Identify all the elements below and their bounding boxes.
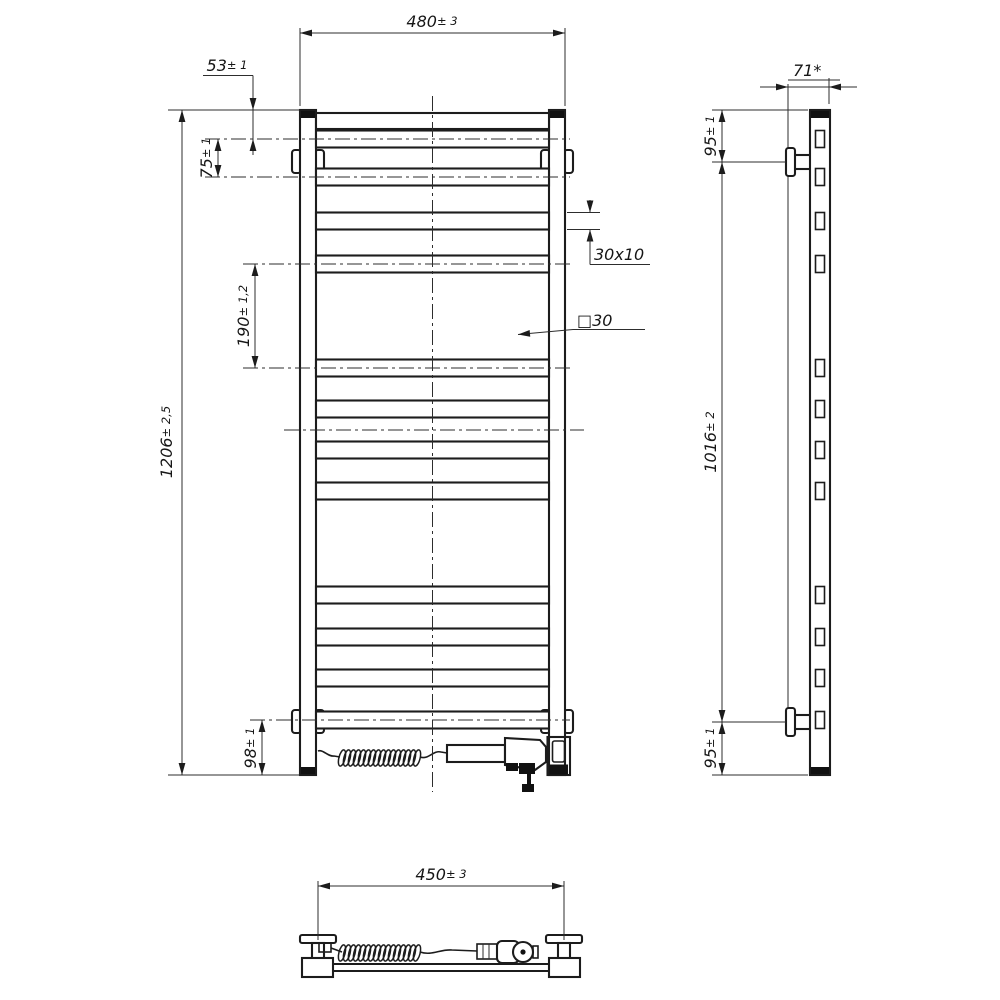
- rung-slot: [816, 442, 825, 459]
- power-cable-bottom: [319, 941, 538, 963]
- technical-drawing-page: 480± 3 1206± 2,5 53± 1 75± 1 190± 1,2 98…: [0, 0, 1000, 1000]
- wall-bracket-side-top: [786, 148, 810, 176]
- left-post: [300, 110, 316, 775]
- power-plug: [447, 738, 546, 792]
- rung-slot: [816, 169, 825, 186]
- dim-rung-pitch: 75± 1: [197, 138, 216, 179]
- bottom-view: [300, 935, 582, 977]
- heating-element-cap: [550, 765, 569, 775]
- post-cap: [301, 111, 315, 118]
- rung-slot: [816, 483, 825, 500]
- post-cap: [811, 767, 829, 774]
- dim-bracket-spacing: 450± 3: [415, 865, 466, 884]
- right-post: [549, 110, 565, 775]
- plug-prong: [506, 763, 518, 771]
- post-cap: [301, 767, 315, 774]
- dim-height: 1206± 2,5: [157, 406, 176, 478]
- dim-depth: 71*: [793, 61, 821, 80]
- rung-slot: [816, 670, 825, 687]
- rung-slot: [816, 213, 825, 230]
- cable-lead: [318, 751, 340, 757]
- plug-prong: [519, 763, 535, 774]
- bracket-stem: [312, 943, 324, 959]
- bottom-view-dimensions: 450± 3: [318, 865, 564, 940]
- wall-bracket-side-bottom: [786, 708, 810, 736]
- rung-slot: [816, 629, 825, 646]
- dim-bracket-span: 1016± 2: [701, 411, 720, 472]
- plug-pin: [527, 774, 531, 785]
- post-cap: [811, 111, 829, 118]
- dim-rung-group-gap: 190± 1,2: [234, 285, 253, 347]
- dim-bottom-bracket-offset: 95± 1: [701, 728, 720, 769]
- callout-rung-profile: 30x10: [594, 245, 644, 264]
- front-view: [205, 96, 584, 792]
- post-foot: [302, 958, 333, 977]
- cable: [420, 752, 447, 758]
- towel-rail-technical-drawing: 480± 3 1206± 2,5 53± 1 75± 1 190± 1,2 98…: [0, 0, 1000, 1000]
- dim-width: 480± 3: [406, 12, 457, 31]
- rung-slot: [816, 401, 825, 418]
- dim-top-bracket-offset: 95± 1: [701, 116, 720, 157]
- dim-top-rung-offset: 53± 1: [207, 56, 248, 75]
- rung-slot: [816, 712, 825, 729]
- rung-slot: [816, 256, 825, 273]
- side-view: [786, 84, 830, 775]
- dim-bottom-rung-offset: 98± 1: [241, 728, 260, 769]
- rung-slot: [816, 131, 825, 148]
- post-foot: [549, 958, 580, 977]
- side-view-dimensions: 71* 95± 1 1016± 2 95± 1: [701, 61, 857, 775]
- power-plug-bottom: [477, 941, 538, 963]
- plug-pin-foot: [522, 784, 534, 792]
- post-cap: [550, 111, 564, 118]
- rung-slot: [816, 587, 825, 604]
- bracket-stem: [558, 943, 570, 959]
- rung-slot: [816, 360, 825, 377]
- plug-body: [447, 745, 505, 762]
- callout-post-profile: □30: [577, 311, 612, 330]
